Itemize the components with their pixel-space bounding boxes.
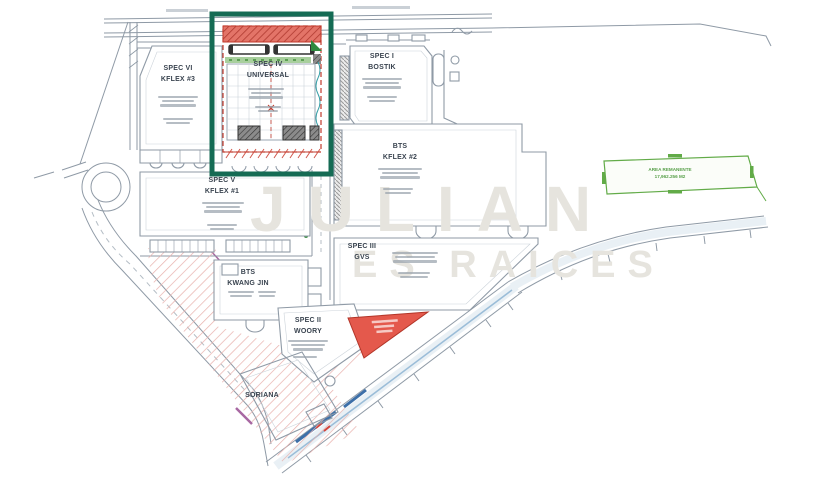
- spec-v-details2: [207, 224, 237, 230]
- label-spec-ii: SPEC II WOORY: [268, 316, 348, 337]
- label-spec-ii-l1: SPEC II: [295, 317, 321, 324]
- label-spec-vi: SPEC VI KFLEX #3: [138, 64, 218, 85]
- label-soriana-l1: SORIANA: [245, 392, 279, 399]
- spec-iv-details: [248, 88, 284, 99]
- spec-ii-details2: [293, 356, 317, 358]
- spec-i-details: [362, 78, 402, 89]
- label-bts-kwangjin-l1: BTS: [241, 269, 256, 276]
- label-spec-iii: SPEC III GVS: [332, 242, 392, 263]
- bts-kflex2-details2: [383, 188, 413, 194]
- label-remnant-parcel: AREA REMANENTE 17,962.256 M2: [628, 166, 712, 181]
- label-remnant-parcel-l2: 17,962.256 M2: [655, 174, 686, 179]
- label-spec-vi-l2: KFLEX #3: [138, 75, 218, 86]
- label-spec-v: SPEC V KFLEX #1: [182, 176, 262, 197]
- bts-kwangjin-details: [228, 291, 254, 297]
- label-spec-iii-l1: SPEC III: [348, 243, 376, 250]
- label-bts-kflex2-l2: KFLEX #2: [360, 153, 440, 164]
- roundabout: [34, 162, 130, 211]
- label-spec-vi-l1: SPEC VI: [163, 65, 192, 72]
- spec-iv-details2: [255, 106, 281, 112]
- site-plan: JULIAN ES RAICES SPEC VI KFLEX #3 SPEC I…: [0, 0, 828, 481]
- label-bts-kflex2-l1: BTS: [393, 143, 408, 150]
- spec-i-details2: [367, 96, 397, 102]
- label-remnant-parcel-l1: AREA REMANENTE: [648, 167, 691, 172]
- label-spec-v-l1: SPEC V: [209, 177, 236, 184]
- spec-v-details: [202, 202, 244, 213]
- spec-iii-details: [392, 252, 438, 263]
- spec-iii-details2: [398, 272, 430, 278]
- label-spec-i-l1: SPEC I: [370, 53, 394, 60]
- spec-vi-details: [158, 96, 198, 107]
- label-spec-iii-l2: GVS: [332, 253, 392, 264]
- label-bts-kflex2: BTS KFLEX #2: [360, 142, 440, 163]
- label-soriana: SORIANA: [222, 391, 302, 402]
- label-spec-i-l2: BOSTIK: [342, 63, 422, 74]
- label-spec-iv-l2: UNIVERSAL: [228, 71, 308, 82]
- label-spec-v-l2: KFLEX #1: [182, 187, 262, 198]
- label-spec-ii-l2: WOORY: [268, 327, 348, 338]
- label-bts-kwangjin-l2: KWANG JIN: [208, 279, 288, 290]
- label-spec-i: SPEC I BOSTIK: [342, 52, 422, 73]
- railway-lines: [104, 6, 771, 46]
- spec-ii-details: [288, 340, 328, 351]
- watermark-line2: ES RAICES: [352, 244, 665, 287]
- label-bts-kwangjin: BTS KWANG JIN: [208, 268, 288, 289]
- label-spec-iv-l1: SPEC IV: [253, 61, 282, 68]
- watermark-line1: JULIAN: [250, 172, 613, 246]
- label-spec-iv: SPEC IV UNIVERSAL: [228, 60, 308, 81]
- bts-kflex2-details: [378, 168, 422, 179]
- bts-kwangjin-details2: [258, 291, 276, 297]
- spec-vi-details2: [163, 118, 193, 124]
